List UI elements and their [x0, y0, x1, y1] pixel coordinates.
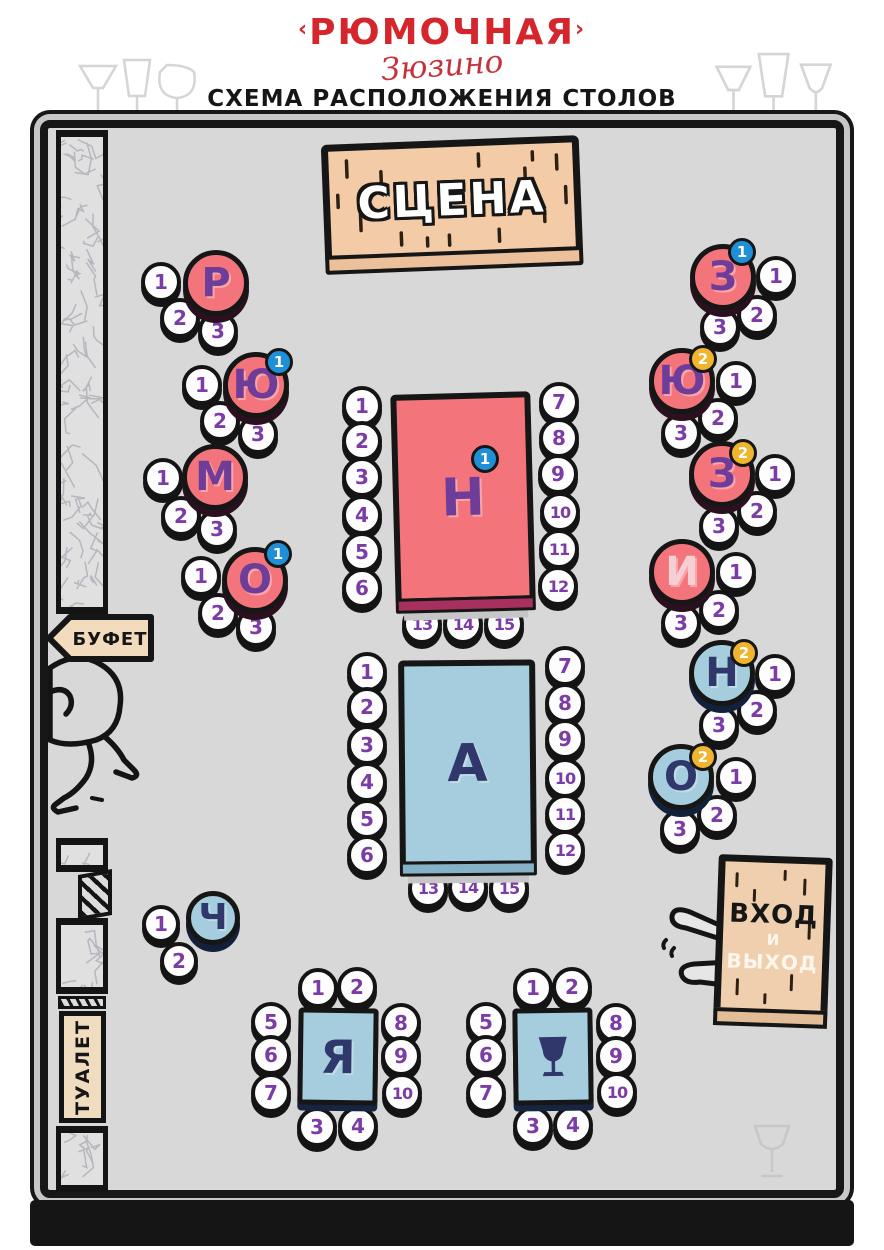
seat-number: 8 — [558, 691, 572, 715]
seat-a-5[interactable]: 5 — [347, 799, 387, 839]
table-badge: 1 — [265, 348, 293, 376]
seat-yu-1-3[interactable]: 3 — [238, 414, 278, 454]
seat-ya-10[interactable]: 10 — [382, 1073, 422, 1113]
entrance-label-line2: И — [766, 931, 779, 949]
seat-number: 1 — [195, 373, 209, 397]
seat-number: 6 — [360, 843, 374, 867]
seat-number: 1 — [526, 976, 540, 1000]
marble-texture — [61, 137, 103, 607]
seat-number: 3 — [310, 1115, 324, 1139]
wall-hatch-object — [78, 869, 112, 921]
seat-number: 1 — [154, 912, 168, 936]
wall-marble-mid-1 — [56, 838, 108, 872]
seat-n-1-9[interactable]: 9 — [538, 454, 578, 494]
seat-number: 15 — [499, 879, 519, 898]
seat-number: 1 — [729, 560, 743, 584]
walking-person-sketch — [48, 656, 140, 834]
faint-glass-sketch — [745, 1120, 799, 1190]
seat-number: 2 — [750, 698, 764, 722]
wall-hatch-strip — [58, 996, 106, 1009]
seat-z-2-3[interactable]: 3 — [699, 506, 739, 546]
seat-r-1[interactable]: 1 — [141, 262, 181, 302]
seat-a-8[interactable]: 8 — [545, 683, 585, 723]
table-badge: 1 — [264, 540, 292, 568]
seat-n-1-11[interactable]: 11 — [539, 529, 579, 569]
seat-i-2[interactable]: 2 — [699, 590, 739, 630]
stage-label: СЦЕНА — [357, 171, 548, 229]
buffet-sign: БУФЕТ — [44, 612, 156, 664]
seat-number: 1 — [729, 369, 743, 393]
seat-n-2-3[interactable]: 3 — [699, 705, 739, 745]
seat-number: 7 — [479, 1081, 493, 1105]
seat-number: 12 — [555, 841, 575, 860]
table-badge: 2 — [730, 639, 758, 667]
seat-number: 3 — [712, 514, 726, 538]
seat-number: 1 — [360, 660, 374, 684]
table-i[interactable]: И — [649, 539, 715, 605]
seat-number: 13 — [418, 879, 438, 898]
seat-m-3[interactable]: 3 — [197, 509, 237, 549]
seat-number: 1 — [355, 394, 369, 418]
seat-number: 5 — [355, 540, 369, 564]
wall-marble-mid-2 — [56, 918, 108, 994]
table-letter: Я — [320, 1033, 356, 1079]
table-badge: 2 — [689, 345, 717, 373]
table-badge: 1 — [728, 238, 756, 266]
wine-glass-icon — [536, 1034, 571, 1078]
table-n-1[interactable]: Н — [390, 391, 535, 605]
seat-number: 1 — [311, 976, 325, 1000]
table-letter: А — [447, 737, 488, 789]
seat-number: 8 — [609, 1011, 623, 1035]
seat-n-1-3[interactable]: 3 — [342, 457, 382, 497]
seat-number: 13 — [412, 615, 432, 634]
toilet-sign: ТУАЛЕТ — [59, 1011, 106, 1123]
seat-o-2-1[interactable]: 1 — [716, 757, 756, 797]
seat-number: 10 — [392, 1084, 412, 1103]
seat-n-1-1[interactable]: 1 — [342, 386, 382, 426]
seat-glass-3[interactable]: 3 — [513, 1106, 553, 1146]
seat-number: 2 — [712, 598, 726, 622]
seat-ya-2[interactable]: 2 — [337, 967, 377, 1007]
seat-number: 2 — [174, 504, 188, 528]
table-badge: 2 — [689, 743, 717, 771]
seat-number: 1 — [154, 270, 168, 294]
table-letter: И — [665, 552, 698, 592]
seat-glass-9[interactable]: 9 — [596, 1036, 636, 1076]
seat-z-1-1[interactable]: 1 — [756, 256, 796, 296]
seat-number: 3 — [674, 421, 688, 445]
seat-ya-9[interactable]: 9 — [381, 1036, 421, 1076]
seat-n-1-5[interactable]: 5 — [342, 532, 382, 572]
seat-number: 4 — [360, 770, 374, 794]
table-ch[interactable]: Ч — [186, 891, 240, 945]
entrance-sign: ВХОД И ВЫХОД — [713, 854, 833, 1020]
seat-number: 7 — [558, 654, 572, 678]
seat-n-2-1[interactable]: 1 — [755, 654, 795, 694]
seat-glass-10[interactable]: 10 — [597, 1072, 637, 1112]
wall-marble-bottom — [56, 1126, 108, 1192]
table-glass[interactable] — [512, 1007, 593, 1105]
table-ya[interactable]: Я — [297, 1007, 378, 1105]
seat-number: 6 — [479, 1043, 493, 1067]
seat-number: 2 — [710, 803, 724, 827]
page-subtitle: СХЕМА РАСПОЛОЖЕНИЯ СТОЛОВ — [0, 86, 884, 112]
seat-number: 7 — [552, 390, 566, 414]
seat-number: 7 — [264, 1081, 278, 1105]
floor-plan: БУФЕТ ТУАЛЕТ СЦЕНА ВХОД И ВЫХОД — [0, 0, 884, 1250]
seat-number: 2 — [172, 949, 186, 973]
seat-number: 3 — [360, 733, 374, 757]
seat-a-12[interactable]: 12 — [545, 830, 585, 870]
seat-a-6[interactable]: 6 — [347, 835, 387, 875]
marble-texture — [61, 925, 103, 987]
seat-ya-3[interactable]: 3 — [297, 1107, 337, 1147]
seat-n-1-8[interactable]: 8 — [539, 418, 579, 458]
seat-o-1-3[interactable]: 3 — [236, 607, 276, 647]
entrance-label-line1: ВХОД — [729, 898, 819, 931]
stage: СЦЕНА — [321, 135, 583, 265]
seat-number: 9 — [551, 462, 565, 486]
toilet-label: ТУАЛЕТ — [72, 1019, 94, 1115]
seat-number: 3 — [249, 615, 263, 639]
seat-yu-1-1[interactable]: 1 — [182, 365, 222, 405]
seat-number: 10 — [607, 1083, 627, 1102]
seat-number: 2 — [711, 406, 725, 430]
seat-number: 4 — [351, 1114, 365, 1138]
seat-number: 1 — [156, 466, 170, 490]
seat-number: 1 — [769, 264, 783, 288]
marble-texture — [61, 1133, 103, 1185]
seat-number: 2 — [213, 409, 227, 433]
seat-number: 2 — [750, 499, 764, 523]
seat-number: 2 — [565, 975, 579, 999]
seat-number: 3 — [713, 315, 727, 339]
seat-n-1-6[interactable]: 6 — [342, 568, 382, 608]
seat-yu-2-3[interactable]: 3 — [661, 413, 701, 453]
seat-number: 3 — [712, 713, 726, 737]
seat-glass-4[interactable]: 4 — [553, 1105, 593, 1145]
seat-glass-2[interactable]: 2 — [552, 967, 592, 1007]
seat-glass-1[interactable]: 1 — [513, 968, 553, 1008]
seat-number: 3 — [210, 517, 224, 541]
seat-glass-6[interactable]: 6 — [466, 1035, 506, 1075]
seat-a-2[interactable]: 2 — [347, 687, 387, 727]
seat-number: 2 — [750, 303, 764, 327]
seat-number: 3 — [251, 422, 265, 446]
seat-number: 4 — [566, 1113, 580, 1137]
seat-number: 2 — [211, 601, 225, 625]
seat-o-1-1[interactable]: 1 — [181, 556, 221, 596]
table-badge: 2 — [729, 439, 757, 467]
seat-number: 2 — [360, 695, 374, 719]
seat-number: 3 — [674, 611, 688, 635]
seat-ya-1[interactable]: 1 — [298, 968, 338, 1008]
seat-n-1-7[interactable]: 7 — [539, 382, 579, 422]
seat-number: 1 — [194, 564, 208, 588]
seat-number: 6 — [264, 1043, 278, 1067]
table-letter: Н — [441, 471, 486, 524]
seat-number: 5 — [264, 1010, 278, 1034]
table-r[interactable]: Р — [183, 250, 249, 316]
table-letter: О — [238, 560, 272, 600]
seat-ya-7[interactable]: 7 — [251, 1073, 291, 1113]
seat-number: 8 — [394, 1011, 408, 1035]
table-letter: Р — [201, 263, 230, 303]
seat-ch-2[interactable]: 2 — [160, 942, 198, 980]
seat-number: 1 — [768, 662, 782, 686]
seat-number: 1 — [729, 765, 743, 789]
seat-number: 14 — [458, 878, 478, 897]
seat-a-1[interactable]: 1 — [347, 652, 387, 692]
seat-number: 6 — [355, 576, 369, 600]
brand-left-mark: ‹ — [298, 17, 309, 42]
seat-z-2-1[interactable]: 1 — [755, 454, 795, 494]
seat-number: 14 — [453, 615, 473, 634]
seat-number: 3 — [211, 319, 225, 343]
seat-number: 5 — [479, 1010, 493, 1034]
seat-a-7[interactable]: 7 — [545, 646, 585, 686]
seat-i-3[interactable]: 3 — [661, 603, 701, 643]
seat-i-1[interactable]: 1 — [716, 552, 756, 592]
seat-number: 4 — [355, 503, 369, 527]
seat-number: 11 — [549, 540, 569, 559]
seat-z-1-3[interactable]: 3 — [700, 307, 740, 347]
seat-number: 8 — [552, 426, 566, 450]
wall-marble-top — [56, 130, 108, 614]
seat-number: 5 — [360, 807, 374, 831]
table-a[interactable]: А — [398, 659, 537, 867]
seat-number: 3 — [673, 817, 687, 841]
seat-a-3[interactable]: 3 — [347, 725, 387, 765]
entrance-label-line3: ВЫХОД — [726, 948, 818, 975]
seat-n-1-4[interactable]: 4 — [342, 495, 382, 535]
seat-ya-6[interactable]: 6 — [251, 1035, 291, 1075]
seat-number: 1 — [768, 462, 782, 486]
seat-r-3[interactable]: 3 — [198, 311, 238, 351]
seat-number: 2 — [350, 975, 364, 999]
buffet-label: БУФЕТ — [72, 629, 147, 650]
seat-m-1[interactable]: 1 — [143, 458, 183, 498]
seat-number: 10 — [550, 503, 570, 522]
seat-number: 11 — [555, 805, 575, 824]
seat-number: 2 — [355, 429, 369, 453]
marble-texture — [61, 845, 103, 865]
seat-number: 10 — [555, 769, 575, 788]
seat-number: 9 — [609, 1044, 623, 1068]
seat-glass-7[interactable]: 7 — [466, 1073, 506, 1113]
seat-number: 3 — [355, 465, 369, 489]
seat-number: 3 — [526, 1114, 540, 1138]
seat-a-9[interactable]: 9 — [545, 719, 585, 759]
seat-number: 9 — [394, 1044, 408, 1068]
seat-number: 12 — [548, 577, 568, 596]
table-m[interactable]: М — [182, 444, 248, 510]
table-badge: 1 — [471, 445, 499, 473]
seat-n-1-10[interactable]: 10 — [540, 492, 580, 532]
seat-a-10[interactable]: 10 — [545, 758, 585, 798]
seat-ya-4[interactable]: 4 — [338, 1106, 378, 1146]
seat-number: 15 — [494, 615, 514, 634]
seat-n-1-2[interactable]: 2 — [342, 421, 382, 461]
seat-yu-2-1[interactable]: 1 — [716, 361, 756, 401]
seat-ch-1[interactable]: 1 — [142, 905, 180, 943]
table-letter: М — [195, 457, 235, 497]
seat-number: 2 — [173, 306, 187, 330]
seat-number: 9 — [558, 727, 572, 751]
table-letter: Ч — [198, 900, 227, 936]
seat-o-2-3[interactable]: 3 — [660, 809, 700, 849]
seat-n-1-12[interactable]: 12 — [538, 566, 578, 606]
seat-a-4[interactable]: 4 — [347, 762, 387, 802]
seat-a-11[interactable]: 11 — [545, 794, 585, 834]
